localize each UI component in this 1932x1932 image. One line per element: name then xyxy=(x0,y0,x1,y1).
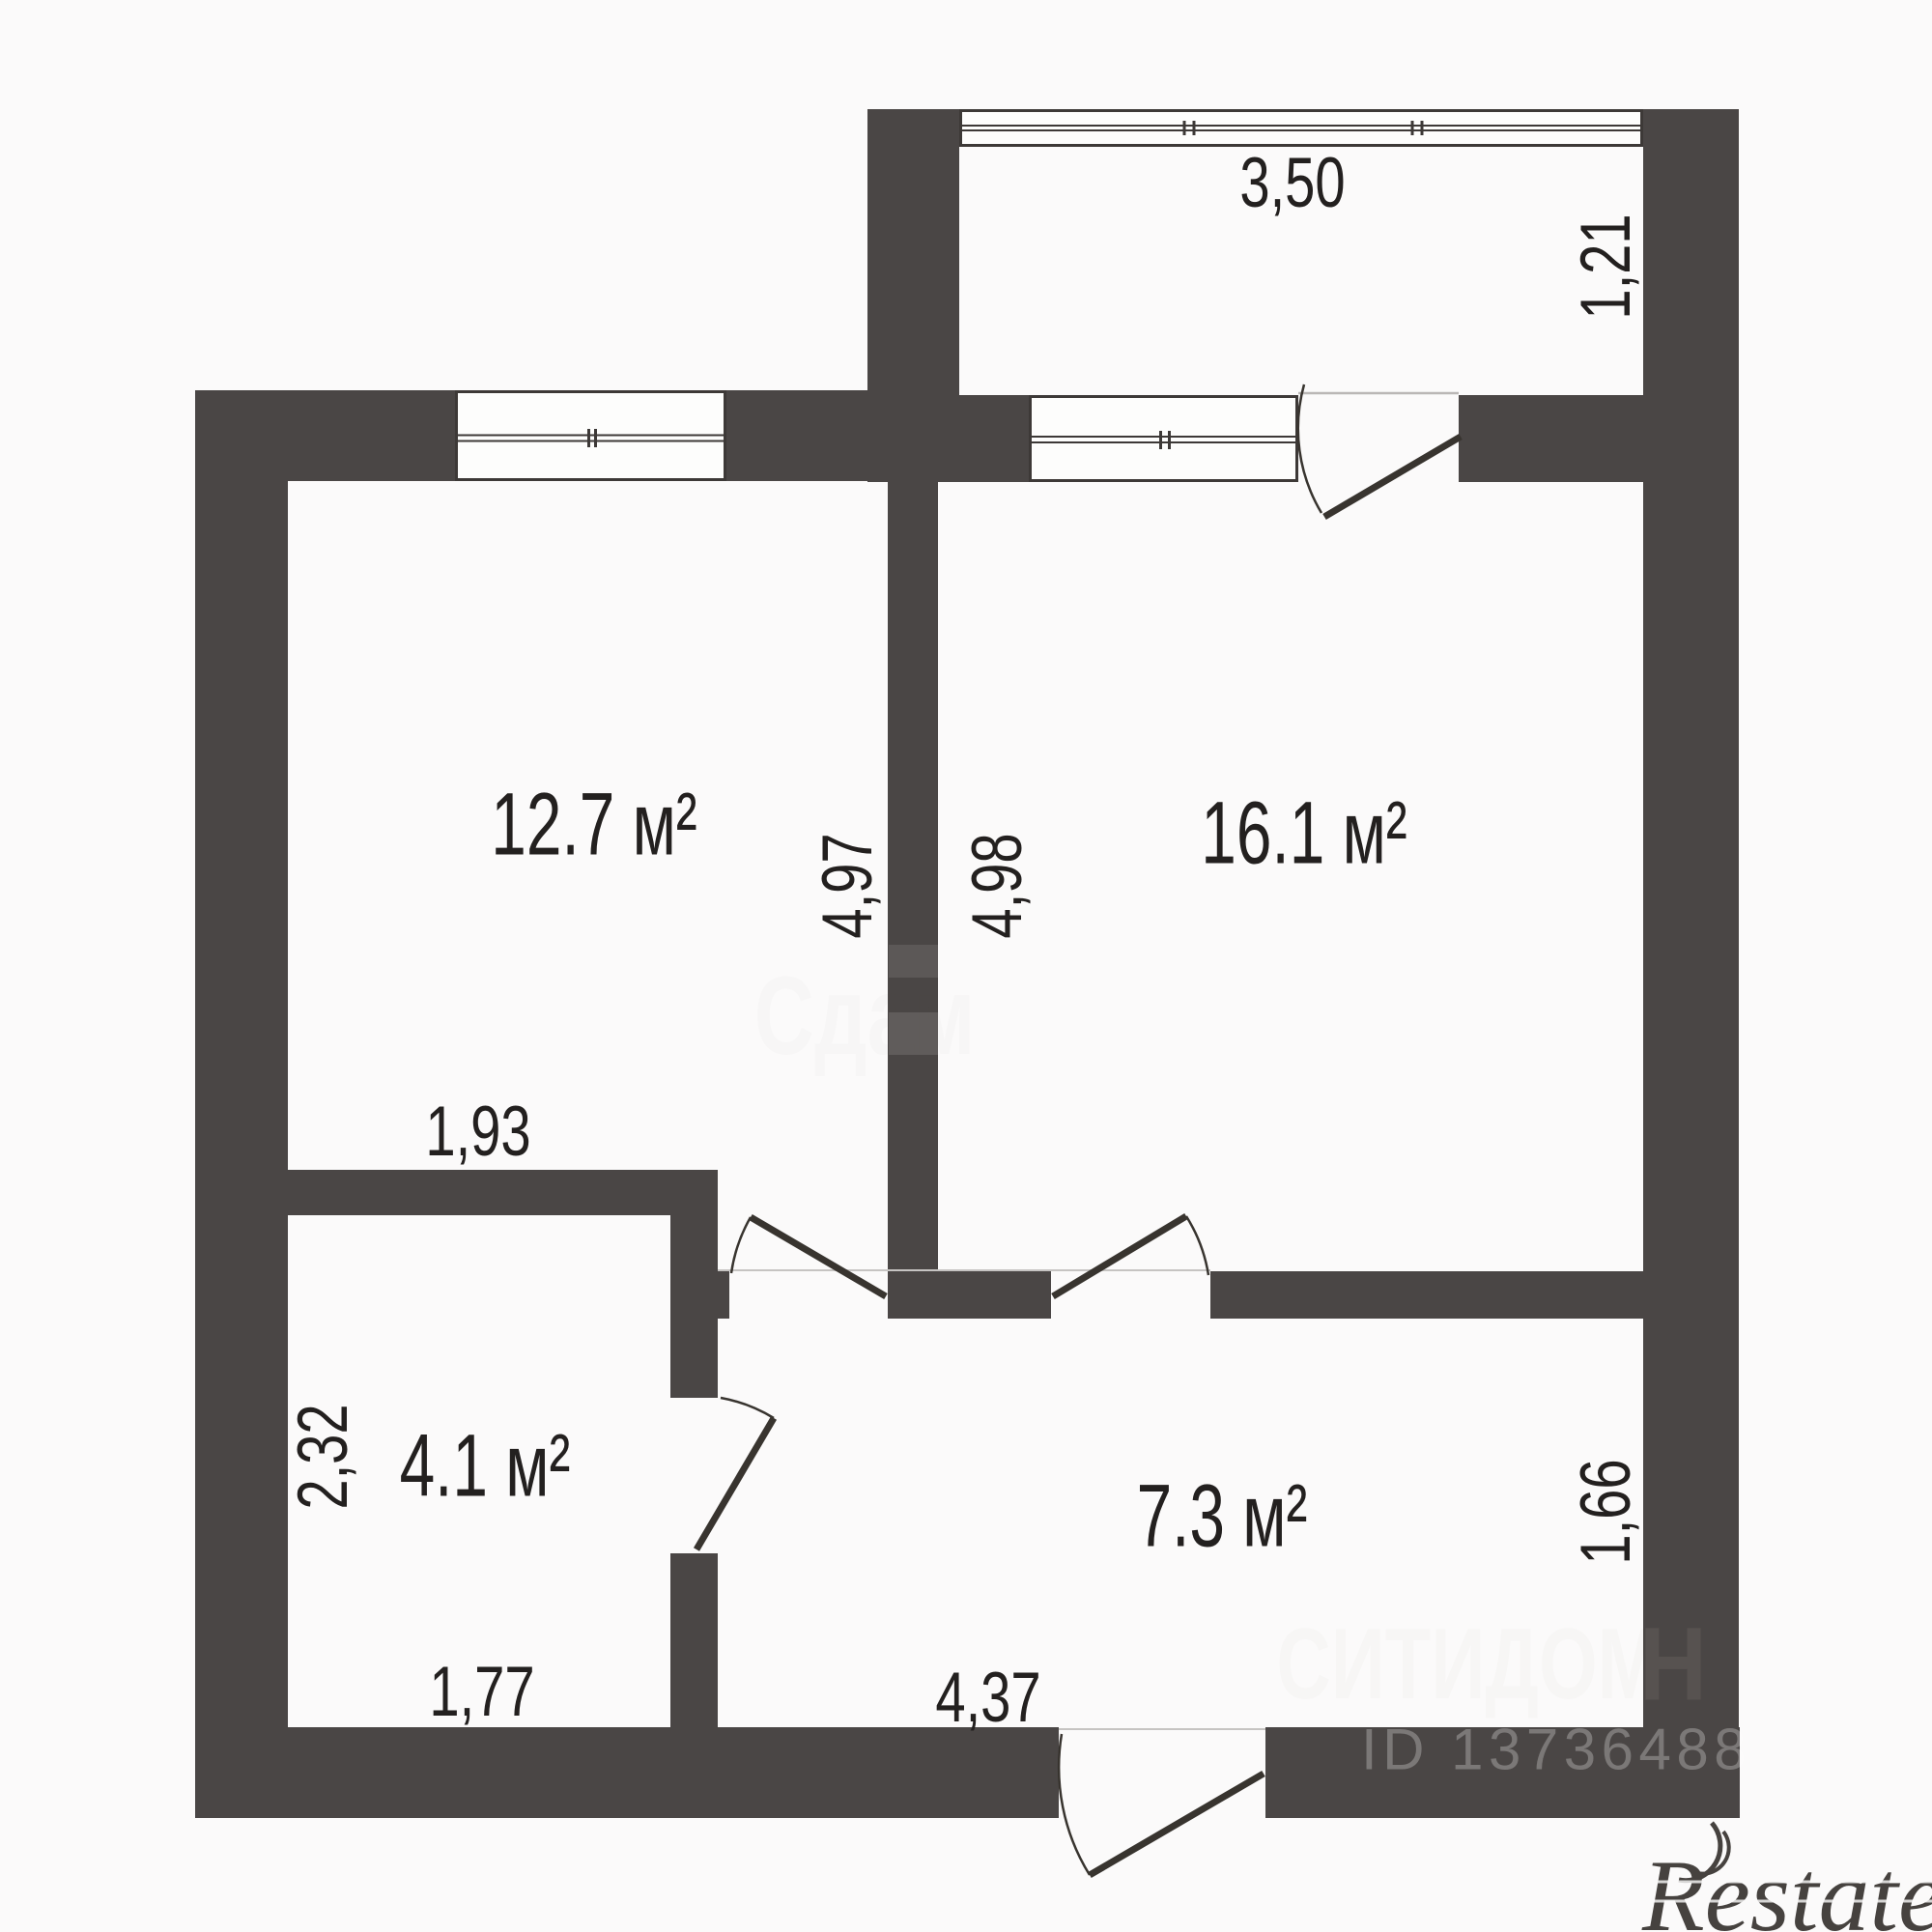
svg-text:4,97: 4,97 xyxy=(808,833,887,938)
svg-text:7.3 м²: 7.3 м² xyxy=(1137,1466,1308,1565)
svg-text:12.7 м²: 12.7 м² xyxy=(491,775,696,873)
svg-text:4,37: 4,37 xyxy=(935,1658,1040,1737)
svg-text:1,66: 1,66 xyxy=(1566,1459,1645,1564)
svg-text:ID 13736488: ID 13736488 xyxy=(1361,1717,1751,1781)
svg-text:Н: Н xyxy=(1639,1605,1707,1722)
svg-text:1,93: 1,93 xyxy=(425,1092,530,1171)
svg-text:4,98: 4,98 xyxy=(957,833,1037,938)
svg-text:1,77: 1,77 xyxy=(429,1652,534,1731)
svg-text:2,32: 2,32 xyxy=(283,1404,362,1509)
svg-text:4.1 м²: 4.1 м² xyxy=(400,1416,571,1515)
svg-text:СИТИДОМ: СИТИДОМ xyxy=(1276,1608,1660,1719)
svg-text:1,21: 1,21 xyxy=(1566,213,1645,319)
svg-text:3,50: 3,50 xyxy=(1239,143,1345,222)
svg-text:Сдам: Сдам xyxy=(754,953,976,1078)
svg-text:Restate: Restate xyxy=(1641,1839,1932,1932)
svg-text:16.1 м²: 16.1 м² xyxy=(1201,783,1406,882)
